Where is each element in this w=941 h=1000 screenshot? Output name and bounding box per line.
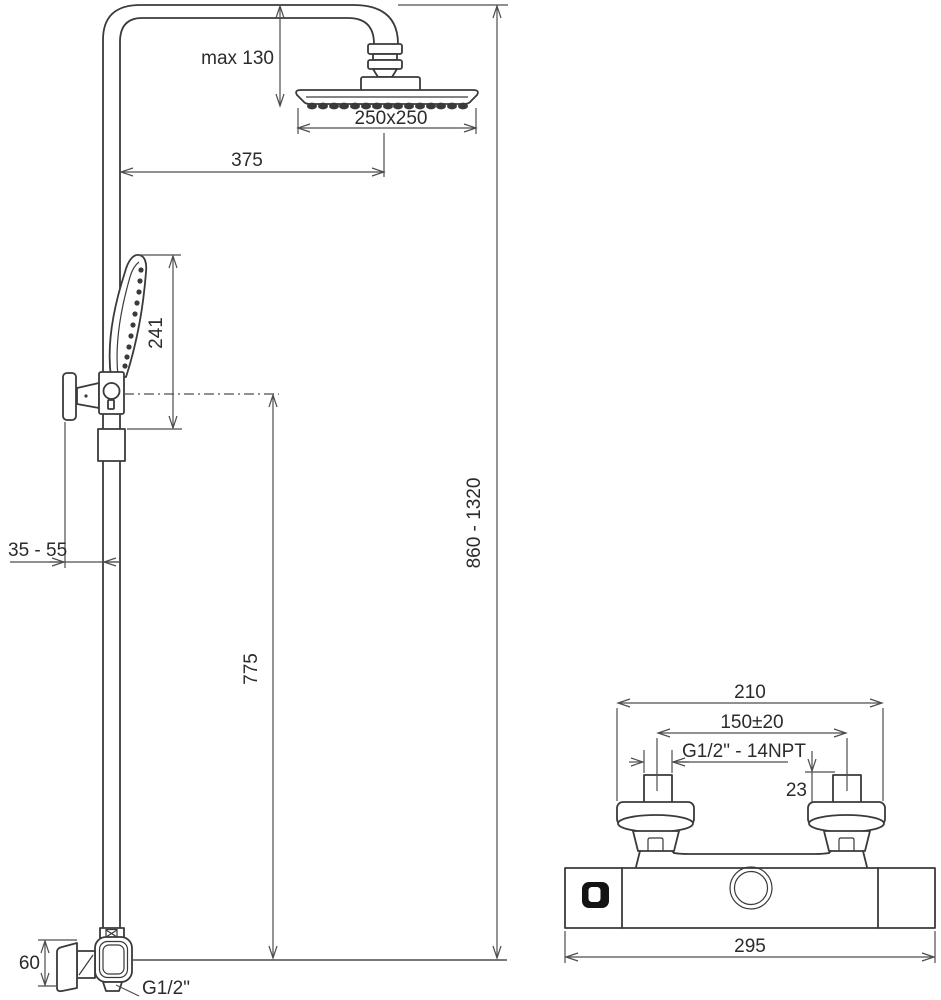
holder-knob [104,383,120,399]
dim-label-241: 241 [146,317,167,349]
mixer-body [565,868,935,928]
dim-label-375: 375 [231,150,263,171]
shower-system-dimension-drawing: max 130 250x250 375 241 860 - 1320 775 3… [0,0,941,1000]
mixer-flange-right [808,802,885,851]
mixer-flange-left [617,802,694,851]
dimension-295: 295 [565,931,935,963]
dim-label-210: 210 [734,682,766,703]
dim-label-35-55: 35 - 55 [8,540,67,561]
shower-holder [63,372,125,461]
holder-shaft [77,383,99,408]
dim-label-23: 23 [786,780,807,801]
overhead-shower-head [296,90,478,109]
dimension-860-1320: 860 - 1320 [398,5,508,958]
dim-label-g12-14npt: G1/2" - 14NPT [682,741,806,762]
dimension-inlet-thread: G1/2" - 14NPT [629,741,806,773]
shower-column [57,5,507,991]
shower-mixer [565,775,935,928]
dimension-775: 775 [124,394,279,958]
dimension-max-130: max 130 [201,6,280,106]
dim-label-max-130: max 130 [201,48,274,69]
mixer-inlet-left [644,775,672,803]
mixer-button [582,882,609,908]
dim-label-775: 775 [241,653,262,685]
dim-label-g12: G1/2" [142,978,190,999]
dimension-375: 375 [121,133,384,177]
hand-shower [110,255,147,377]
water-inlet-fitting [57,928,132,991]
dim-label-60: 60 [19,953,40,974]
overhead-shower-connector [361,44,420,92]
wall-bracket [63,373,76,420]
holder-sleeve [98,429,125,461]
riser-pipe [103,5,398,932]
dim-label-150-20: 150±20 [720,712,783,733]
technical-drawing-page: max 130 250x250 375 241 860 - 1320 775 3… [0,0,941,1000]
dim-label-295: 295 [734,936,766,957]
dim-label-860-1320: 860 - 1320 [464,478,485,569]
mixer-necks [636,851,867,867]
dim-label-250x250: 250x250 [355,108,428,129]
dimension-250x250: 250x250 [298,108,476,134]
wall-cone [57,943,77,991]
